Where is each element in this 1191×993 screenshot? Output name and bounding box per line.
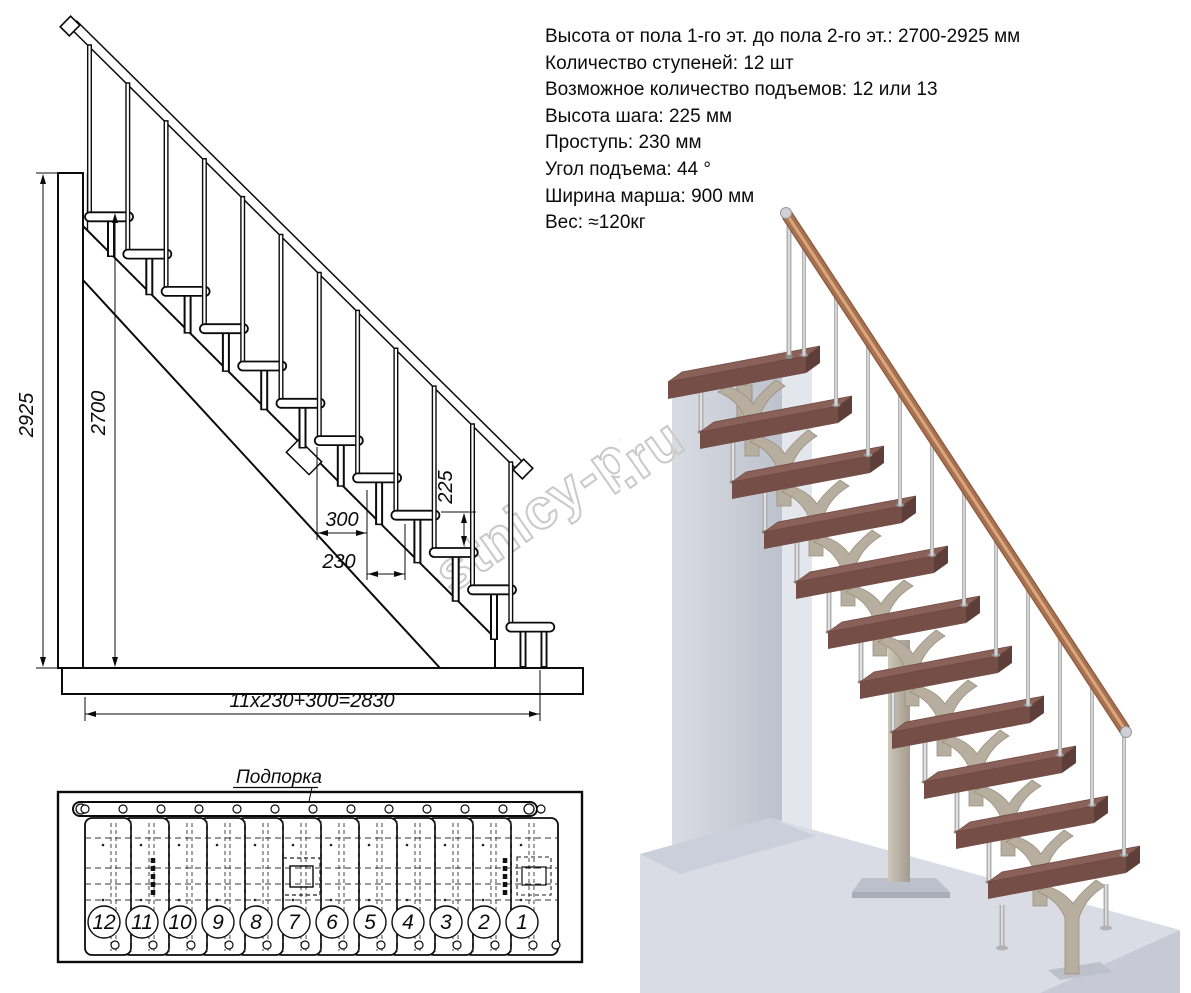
step-number: 9 [212, 911, 224, 934]
step-number: 10 [168, 911, 192, 934]
tread [506, 623, 554, 632]
dimension-label: 230 [321, 551, 355, 573]
bolt [81, 805, 89, 813]
bolt [157, 805, 165, 813]
bolt [339, 941, 347, 949]
step-number: 4 [402, 911, 414, 934]
bolt [263, 941, 271, 949]
step-number: 5 [364, 911, 376, 934]
bolt [119, 805, 127, 813]
bolt [377, 941, 385, 949]
bolt [385, 805, 393, 813]
dimension-label: 2925 [16, 392, 38, 438]
foot-disk [1100, 926, 1112, 931]
step-number: 6 [326, 911, 338, 934]
bolt [187, 941, 195, 949]
bolt [461, 805, 469, 813]
step-number: 7 [288, 911, 301, 934]
plan-view: Подпорка121110987654321 [40, 755, 600, 993]
bolt [149, 941, 157, 949]
spec-line: Высота шага: 225 мм [545, 104, 1145, 131]
spec-line: Возможное количество подъемов: 12 или 13 [545, 77, 1145, 104]
bolt [271, 805, 279, 813]
bolt [415, 941, 423, 949]
bolt [529, 941, 537, 949]
step-number: 1 [516, 911, 528, 934]
bolt [537, 805, 545, 813]
dimension-arrow [40, 174, 46, 184]
dimension-label: 225 [435, 469, 457, 504]
dimension-arrow [86, 711, 96, 717]
spec-line: Количество ступеней: 12 шт [545, 51, 1145, 78]
wall-column [58, 173, 83, 668]
spec-line: Высота от пола 1-го эт. до пола 2-го эт.… [545, 24, 1145, 51]
step-number: 11 [131, 911, 153, 934]
step-number: 8 [250, 911, 262, 934]
technical-drawing-page: lestnicy-prosto.ru2925270022530023011x23… [0, 0, 1191, 993]
handrail-tip [781, 208, 792, 219]
dimension-arrow [112, 657, 118, 667]
dimension-label: 2700 [88, 391, 110, 437]
bolt [195, 805, 203, 813]
bolt [309, 805, 317, 813]
bolt [301, 941, 309, 949]
bolt [423, 805, 431, 813]
bolt [233, 805, 241, 813]
spec-line: Угол подъема: 44 ° [545, 157, 1145, 184]
bolt [499, 805, 507, 813]
render-3d: lestnicy-prosto.ru [620, 190, 1191, 993]
bolt [347, 805, 355, 813]
dimension-label: 11x230+300=2830 [229, 690, 394, 712]
dimension-arrow [529, 711, 539, 717]
step-number: 3 [440, 911, 452, 934]
step-number: 12 [92, 911, 116, 934]
support-label: Подпорка [236, 767, 322, 788]
bolt [491, 941, 499, 949]
bolt [111, 941, 119, 949]
handrail-tip [1121, 727, 1132, 738]
foot-disk [996, 946, 1008, 951]
dimension-arrow [40, 657, 46, 667]
spec-line: Проступь: 230 мм [545, 130, 1145, 157]
elevation-drawing: lestnicy-prosto.ru2925270022530023011x23… [0, 0, 620, 760]
bolt [453, 941, 461, 949]
step-number: 2 [477, 911, 490, 934]
dimension-arrow [461, 513, 467, 523]
dimension-label: 300 [325, 509, 358, 531]
bolt [225, 941, 233, 949]
